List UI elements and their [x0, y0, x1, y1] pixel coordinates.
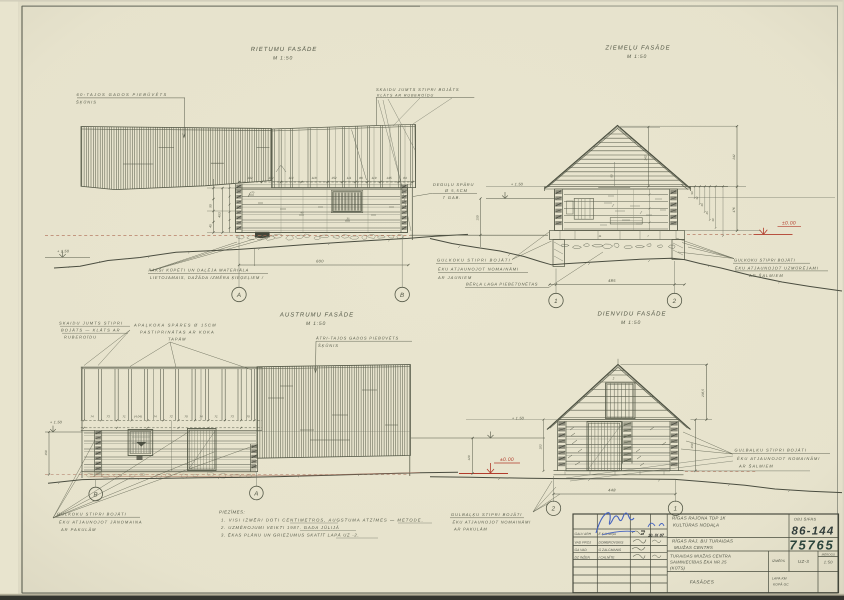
svg-text:FASĀDES: FASĀDES — [690, 580, 715, 585]
svg-text:235,5: 235,5 — [701, 389, 705, 398]
svg-text:71: 71 — [214, 415, 218, 419]
svg-text:M 1:50: M 1:50 — [621, 320, 641, 326]
svg-text:1. VISI IZMĒRI DOTI CENTIMETR: 1. VISI IZMĒRI DOTI CENTIMETROS, AUGSTUM… — [221, 518, 424, 523]
svg-text:ĒKU ATJAUNOJOT NOMAINĀMI: ĒKU ATJAUNOJOT NOMAINĀMI — [453, 520, 532, 525]
svg-text:DIENVIDU FASĀDE: DIENVIDU FASĀDE — [598, 311, 667, 318]
svg-text:7 GAB.: 7 GAB. — [443, 195, 462, 200]
svg-text:11: 11 — [599, 234, 602, 238]
svg-text:119: 119 — [372, 176, 377, 180]
svg-text:RUBEROĪDU: RUBEROĪDU — [64, 335, 97, 340]
svg-text:39: 39 — [701, 203, 704, 206]
svg-text:SAIMNIECĪBAS ĒKA NR 25: SAIMNIECĪBAS ĒKA NR 25 — [670, 560, 727, 565]
svg-text:448: 448 — [608, 488, 616, 493]
svg-text:AR ŠALMIEM: AR ŠALMIEM — [738, 464, 774, 469]
svg-text:+ 1.50: + 1.50 — [57, 249, 70, 254]
svg-text:ĒKU ATJAUNOJOT NOMAINĀMI: ĒKU ATJAUNOJOT NOMAINĀMI — [737, 456, 820, 461]
svg-text:1: 1 — [554, 298, 558, 305]
svg-text:OBJ ŠIFRS: OBJ ŠIFRS — [794, 517, 816, 522]
svg-text:176: 176 — [732, 207, 736, 213]
svg-text:72: 72 — [169, 415, 173, 419]
svg-text:90: 90 — [609, 174, 613, 178]
svg-text:2. UZMĒROJUMI VEIKTI 1987. G: 2. UZMĒROJUMI VEIKTI 1987. GADA JŪLIJĀ — [220, 525, 339, 530]
svg-text:±0.00: ±0.00 — [500, 457, 514, 463]
svg-text:73: 73 — [230, 415, 234, 419]
svg-text:BOJĀTS — KLĀTS AR: BOJĀTS — KLĀTS AR — [61, 328, 121, 333]
svg-text:152: 152 — [331, 176, 336, 180]
svg-text:84: 84 — [403, 176, 407, 180]
svg-text:103: 103 — [538, 444, 542, 449]
svg-text:+ 1.50: + 1.50 — [511, 181, 524, 186]
svg-text:AR JAUNIEM: AR JAUNIEM — [437, 275, 472, 280]
svg-text:A: A — [253, 490, 258, 497]
svg-text:1: 1 — [674, 506, 678, 513]
svg-text:1:50: 1:50 — [824, 560, 833, 565]
svg-text:145: 145 — [386, 176, 391, 180]
svg-text:120: 120 — [467, 455, 471, 460]
svg-text:AR PAKULĀM: AR PAKULĀM — [60, 527, 97, 532]
svg-text:242: 242 — [643, 155, 647, 161]
svg-text:600: 600 — [316, 259, 324, 264]
svg-text:RĪGAS RAJ. BIJ TURAIDAS: RĪGAS RAJ. BIJ TURAIDAS — [672, 539, 733, 544]
svg-text:403: 403 — [218, 212, 222, 217]
svg-text:ZIEMEĻU FASĀDE: ZIEMEĻU FASĀDE — [604, 45, 670, 52]
svg-text:+70: +70 — [250, 192, 255, 195]
svg-text:B: B — [94, 491, 98, 498]
svg-text:KULTŪRAS NODAĻA: KULTŪRAS NODAĻA — [673, 523, 719, 528]
svg-text:45: 45 — [209, 224, 213, 228]
svg-text:KLĀTS AR RUBEROĪDU: KLĀTS AR RUBEROĪDU — [377, 92, 434, 97]
svg-text:TURAIDAS MUIŽAS CENTRA: TURAIDAS MUIŽAS CENTRA — [670, 554, 731, 559]
svg-text:ĒKU ATJAUNOJOT JĀNOMAINA: ĒKU ATJAUNOJOT JĀNOMAINA — [59, 520, 143, 525]
svg-text:3. ĒKAS PLĀNU UN GRIEZUMUS SK: 3. ĒKAS PLĀNU UN GRIEZUMUS SKATĪT LAPĀ U… — [221, 533, 359, 538]
svg-text:ŠĶŪNIS: ŠĶŪNIS — [318, 343, 339, 348]
svg-text:APAĻKOKA SPĀRES Ø 15CM: APAĻKOKA SPĀRES Ø 15CM — [133, 323, 217, 328]
svg-text:485: 485 — [608, 278, 616, 283]
svg-text:86: 86 — [359, 176, 363, 180]
svg-text:VAD PROJ: VAD PROJ — [575, 541, 592, 545]
svg-text:58: 58 — [712, 218, 715, 221]
svg-text:GULKOKU STIPRI BOJĀTI: GULKOKU STIPRI BOJĀTI — [437, 258, 511, 263]
svg-text:M 1:50: M 1:50 — [273, 56, 293, 62]
svg-text:LIETOJAMAIS, DAŽĀDA IZMĒRA ĶIE: LIETOJAMAIS, DAŽĀDA IZMĒRA ĶIEĢEĻIEM / — [150, 275, 264, 280]
svg-text:I CALNĪTE: I CALNĪTE — [599, 555, 616, 559]
svg-text:AUSTRUMU FASĀDE: AUSTRUMU FASĀDE — [279, 312, 354, 319]
svg-text:71: 71 — [122, 415, 126, 419]
svg-text:±0.00: ±0.00 — [782, 220, 796, 226]
svg-text:10. IX 87: 10. IX 87 — [648, 533, 665, 538]
svg-text:DEGUĻU SPĀRU: DEGUĻU SPĀRU — [433, 182, 474, 187]
svg-text:111: 111 — [347, 176, 352, 180]
svg-text:102: 102 — [247, 176, 252, 180]
svg-text:86-144: 86-144 — [791, 526, 834, 538]
svg-text:SKAIDU JUMTS STIPRI BOJĀTS: SKAIDU JUMTS STIPRI BOJĀTS — [376, 87, 459, 92]
svg-text:73: 73 — [106, 415, 110, 419]
svg-text:2: 2 — [672, 298, 677, 305]
svg-text:DOMBROVSKIS: DOMBROVSKIS — [599, 541, 625, 545]
svg-text:150: 150 — [476, 215, 480, 220]
svg-text:IZMĒRS: IZMĒRS — [772, 559, 786, 563]
svg-text:74: 74 — [153, 415, 157, 419]
svg-text:GULBAĻĶU STIPRI BOJĀTI: GULBAĻĶU STIPRI BOJĀTI — [735, 448, 807, 453]
svg-text:52: 52 — [696, 196, 699, 199]
svg-text:GALV ARH: GALV ARH — [575, 532, 592, 536]
svg-text:GULKOKU STIPRI BOJĀTI: GULKOKU STIPRI BOJĀTI — [734, 258, 796, 263]
svg-text:150: 150 — [690, 443, 694, 448]
svg-text:UZ-3: UZ-3 — [798, 559, 809, 564]
svg-text:74: 74 — [90, 415, 94, 419]
svg-text:M 1:50: M 1:50 — [627, 54, 647, 60]
svg-text:GULBAĻĶU STIPRI BOJĀTI: GULBAĻĶU STIPRI BOJĀTI — [451, 512, 522, 517]
svg-text:70: 70 — [184, 415, 188, 419]
svg-text:RĪGAS RAJONA TDP 1K: RĪGAS RAJONA TDP 1K — [672, 516, 727, 521]
svg-text:SKAIDU JUMTS STIPRI: SKAIDU JUMTS STIPRI — [59, 321, 123, 326]
svg-text:90: 90 — [691, 191, 694, 194]
svg-text:M 1:50: M 1:50 — [306, 321, 326, 327]
svg-text:DZ INŽEN: DZ INŽEN — [575, 555, 591, 559]
svg-text:90: 90 — [209, 204, 213, 208]
svg-text:B: B — [400, 292, 404, 299]
svg-text:KOPĀ GC: KOPĀ GC — [773, 583, 789, 587]
svg-text:2: 2 — [612, 377, 615, 381]
svg-text:PASTIPRINĀTAS AR KOKA: PASTIPRINĀTAS AR KOKA — [140, 330, 215, 335]
svg-text:74: 74 — [199, 415, 203, 419]
svg-text:118: 118 — [312, 176, 317, 180]
svg-text:MĒROGS: MĒROGS — [822, 553, 835, 557]
svg-text:ĒKU ATJAUNOJOT UZMŪRĒJAMI: ĒKU ATJAUNOJOT UZMŪRĒJAMI — [735, 265, 819, 270]
svg-text:Ø 5,5CM: Ø 5,5CM — [444, 188, 468, 193]
svg-text:242: 242 — [732, 154, 736, 161]
svg-text:AR PAKULĀM: AR PAKULĀM — [453, 527, 488, 532]
svg-text:PAKŠI KŪPĒTI UN DAĻĒJA MATERIĀ: PAKŠI KŪPĒTI UN DAĻĒJA MATERIĀLA — [149, 268, 250, 273]
svg-text:45: 45 — [706, 211, 709, 214]
svg-text:(KŪTS): (KŪTS) — [670, 566, 686, 571]
svg-text:A: A — [236, 292, 241, 299]
svg-text:2: 2 — [551, 506, 556, 513]
svg-text:+ 1.50: + 1.50 — [50, 420, 63, 425]
svg-text:RIETUMU FASĀDE: RIETUMU FASĀDE — [251, 46, 318, 53]
svg-text:LAPA KM: LAPA KM — [772, 577, 787, 581]
svg-text:75765: 75765 — [789, 538, 834, 553]
svg-text:MUIŽAS CENTRS: MUIŽAS CENTRS — [674, 545, 713, 550]
svg-text:ĀTRI-TAJOS GADOS PIEBŪVĒTS: ĀTRI-TAJOS GADOS PIEBŪVĒTS — [315, 336, 399, 341]
svg-text:AR ŠALMIEM: AR ŠALMIEM — [748, 273, 784, 278]
svg-text:GA VAD: GA VAD — [575, 548, 588, 552]
svg-text:BĒRĻA LAGA PIEBETONĒTAS: BĒRĻA LAGA PIEBETONĒTAS — [466, 282, 538, 287]
svg-text:114: 114 — [289, 176, 294, 180]
svg-text:132: 132 — [268, 176, 273, 180]
svg-text:TAPĀM: TAPĀM — [168, 337, 186, 342]
svg-text:ŠĶŪNIS: ŠĶŪNIS — [76, 100, 97, 105]
svg-text:70: 70 — [246, 415, 250, 419]
svg-text:G ZALCMANIS: G ZALCMANIS — [599, 548, 622, 552]
svg-text:PIEZĪMES:: PIEZĪMES: — [219, 510, 245, 515]
svg-text:ĒKU ATJAUNOJOT NOMAINĀMI: ĒKU ATJAUNOJOT NOMAINĀMI — [438, 267, 519, 272]
svg-text:150: 150 — [44, 450, 48, 455]
svg-text:(4.04): (4.04) — [134, 415, 142, 419]
svg-text:60-TAJOS GADOS PIEBŪVĒTS: 60-TAJOS GADOS PIEBŪVĒTS — [77, 92, 168, 97]
